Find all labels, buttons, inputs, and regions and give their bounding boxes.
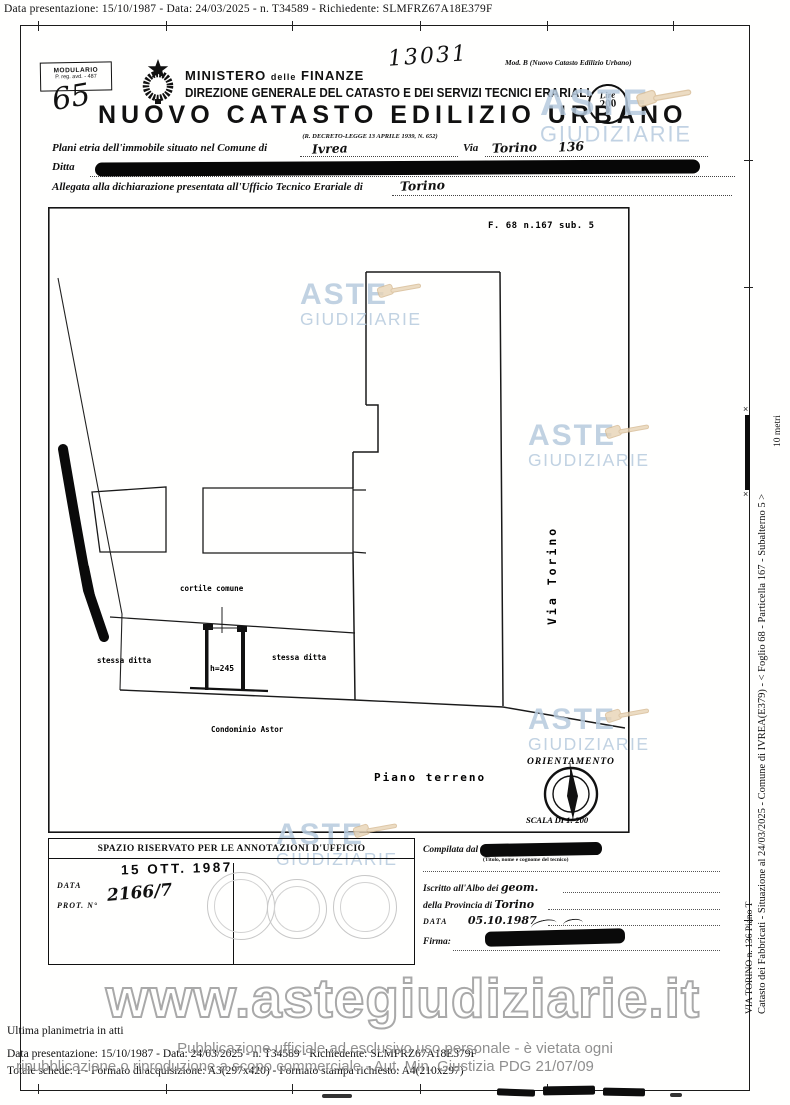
ministry-word: delle [271,72,297,82]
piano-terreno-label: Piano terreno [374,771,486,784]
provincia-label: della Provincia di [423,901,492,911]
scale-end-mark: × [743,404,748,414]
unit-wall [241,631,245,691]
unit-base-line [190,688,268,691]
ruler-tick [744,160,753,161]
footer-ultima: Ultima planimetria in atti [7,1025,124,1037]
faint-round-stamp [207,872,275,940]
document-subtitle: (R. DECRETO-LEGGE 13 APRILE 1939, N. 652… [240,133,500,140]
scan-artifact [670,1093,682,1097]
compiled-data-value: 05.10.1987 [468,914,537,927]
ufficio-value: Torino [400,177,445,194]
iscritto-value: geom. [501,881,539,894]
disclaimer-line1: Pubblicazione ufficiale ad esclusivo uso… [0,1040,790,1057]
url-watermark: www.astegiudiziarie.it [88,966,718,1030]
ditta-field-label: Ditta [52,161,75,173]
ruler-tick [166,21,167,31]
dotted-line [453,950,720,951]
iscritto-label: Iscritto all'Albo dei [423,884,498,894]
scale-end-mark: × [743,489,748,499]
ufficio-field-label: Allegata alla dichiarazione presentata a… [52,181,363,193]
date-stamp: 15 OTT. 1987 [121,860,233,878]
dotted-line [485,155,708,157]
orientamento-label: ORIENTAMENTO [527,757,615,767]
wall-line [353,490,366,553]
margin-caption-address: VIA TORINO n. 136 Piano T [745,902,755,1014]
annotations-header: SPAZIO RISERVATO PER LE ANNOTAZIONI D'UF… [49,839,414,859]
name-redaction-bar [480,842,602,857]
unit-wall [205,630,209,690]
stessa-ditta-left-label: stessa ditta [97,656,152,665]
mod-b-label: Mod. B (Nuovo Catasto Edilizio Urbano) [505,58,632,67]
firma-label: Firma: [423,937,451,947]
cortile-label: cortile comune [180,584,244,593]
condominio-label: Condominio Astor [211,725,284,734]
direzione-line: DIREZIONE GENERALE DEL CATASTO E DEI SER… [185,86,590,100]
cadastral-document-scan: Data presentazione: 15/10/1987 - Data: 2… [0,0,790,1105]
scan-artifact [603,1088,645,1097]
ruler-tick [38,1084,39,1094]
comune-value: Ivrea [312,140,348,156]
ruler-tick [547,21,548,31]
tecnico-hint: (Titolo, nome e cognome del tecnico) [483,857,568,863]
via-value: Torino [492,139,537,156]
ruler-tick [292,1084,293,1094]
compilata-label: Compilata dal [423,845,478,855]
dotted-line [423,871,720,872]
ruler-tick [420,1084,421,1094]
civico-value: 136 [558,138,585,154]
ruler-tick [38,21,39,31]
scan-artifact [497,1088,535,1096]
bottom-boundary [120,690,625,728]
annotations-box: SPAZIO RISERVATO PER LE ANNOTAZIONI D'UF… [48,838,415,965]
plan-frame [49,208,629,832]
ministry-word: MINISTERO [185,68,266,83]
faint-round-stamp [333,875,397,939]
pillar [203,624,213,630]
ruler-tick [166,1084,167,1094]
parcel-ref-label: F. 68 n.167 sub. 5 [488,221,595,231]
dotted-line [563,892,720,893]
scan-artifact [543,1086,595,1096]
marker-stroke [63,449,104,637]
scale-bar [745,415,750,490]
height-label: h=245 [210,664,234,673]
scala-label: SCALA DI 1: 200 [526,815,589,825]
strip-top-wall [110,617,355,633]
compiled-data-label: DATA [423,917,447,926]
lire-value: 200 [590,97,627,111]
prot-value: 2166/7 [106,880,173,906]
dotted-line [548,909,720,910]
comune-field-label: Plani etria dell'immobile situato nel Co… [52,142,267,154]
ruler-tick [292,21,293,31]
prot-label: PROT. N° [57,901,98,910]
ministry-word: FINANZE [301,68,364,83]
floor-plan-drawing: F. 68 n.167 sub. 5 cortile comune stessa… [48,207,630,833]
via-field-label: Via [463,142,478,154]
compass-icon [545,763,597,821]
ruler-tick [744,287,753,288]
faint-round-stamp [267,879,327,939]
room-outline [92,487,166,552]
room-outline [203,488,353,553]
ministry-line: MINISTERO delle FINANZE [185,68,364,83]
dotted-line [392,194,732,196]
building-outline [353,272,503,706]
data-label: DATA [57,881,81,890]
stessa-ditta-right-label: stessa ditta [272,653,327,662]
ruler-tick [420,21,421,31]
via-torino-street-label: Via Torino [545,526,559,625]
scan-artifact [322,1094,352,1098]
margin-caption-catasto: Catasto dei Fabbricati - Situazione al 2… [757,494,768,1014]
top-meta-line: Data presentazione: 15/10/1987 - Data: 2… [4,3,493,15]
ruler-tick [673,21,674,31]
handwritten-sheet-number: 65 [49,77,93,118]
provincia-value: Torino [495,898,535,911]
disclaimer-line2: ripubblicazione o riproduzione a scopo c… [0,1058,700,1075]
scale-length-label: 10 metri [773,415,783,447]
